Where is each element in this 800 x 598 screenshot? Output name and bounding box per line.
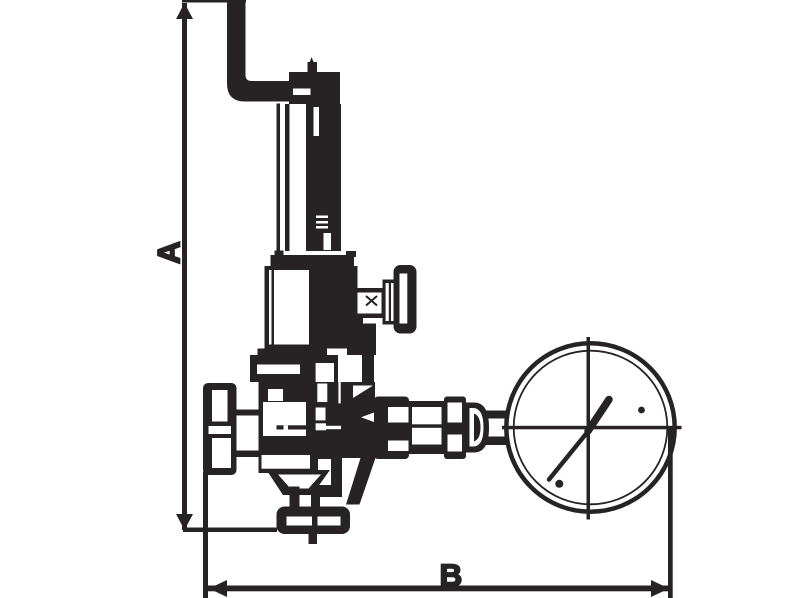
svg-text:A: A <box>151 241 187 264</box>
svg-text:B: B <box>440 557 463 593</box>
